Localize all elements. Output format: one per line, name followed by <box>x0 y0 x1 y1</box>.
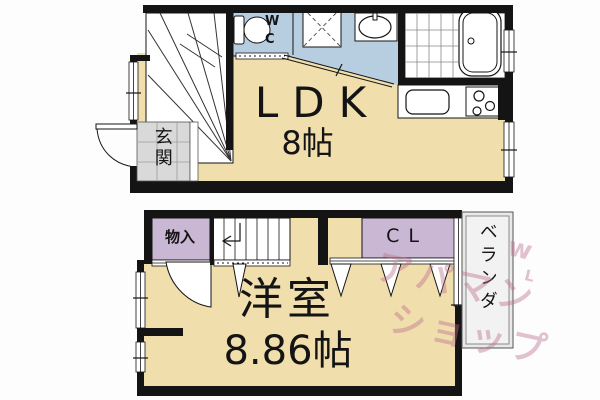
western-room-size-label: 8.86帖 <box>162 329 414 373</box>
washbasin-icon <box>355 13 397 41</box>
ldk-label: LDK <box>205 80 430 126</box>
wc-label: W C <box>265 13 287 48</box>
stairs-2f-icon <box>213 218 290 260</box>
stove-icon <box>466 87 501 116</box>
western-room-label: 洋室 <box>172 276 402 324</box>
front-door-arc <box>96 124 137 167</box>
closet-label: CL <box>358 226 456 247</box>
entrance-label: 玄関 <box>152 127 172 187</box>
wc-door <box>236 53 288 59</box>
ldk-size-label: 8帖 <box>205 126 410 161</box>
washing-machine-pan-icon <box>303 8 341 47</box>
entrance-step <box>190 122 198 181</box>
bathtub-icon <box>459 9 501 76</box>
veranda-label: ベランダ <box>477 222 497 347</box>
storage-label: 物入 <box>150 229 210 246</box>
bathroom <box>405 9 505 78</box>
floorplan-image: W C LDK 8帖 玄関 物入 CL 洋室 8.86帖 ベランダ アパマン シ… <box>0 0 600 400</box>
